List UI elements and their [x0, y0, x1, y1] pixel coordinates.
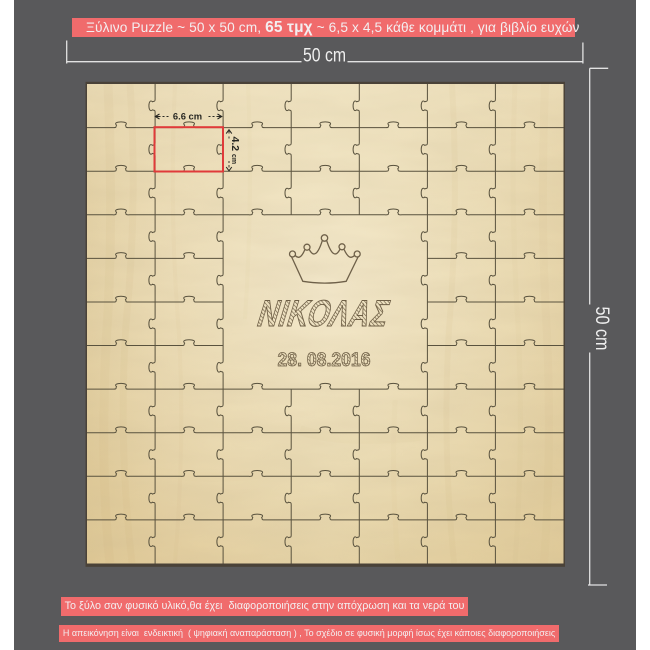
svg-text:ΝΙΚΟΛΑΣ: ΝΙΚΟΛΑΣ — [253, 294, 396, 335]
svg-text:50 cm: 50 cm — [303, 46, 346, 67]
svg-text:28. 08.2016: 28. 08.2016 — [278, 350, 371, 371]
svg-text:6.6 cm: 6.6 cm — [173, 110, 202, 121]
svg-text:50 cm: 50 cm — [591, 307, 612, 351]
